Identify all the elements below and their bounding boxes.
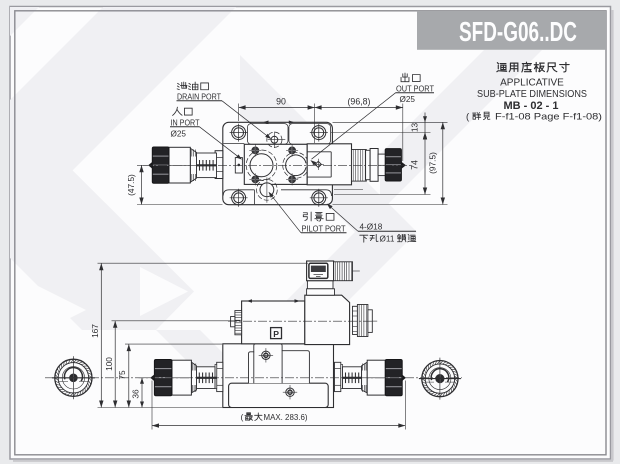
svg-text:(97.5): (97.5)	[427, 152, 437, 174]
svg-text:OUT PORT: OUT PORT	[396, 84, 434, 93]
svg-text:SUB-PLATE DIMENSIONS: SUB-PLATE DIMENSIONS	[477, 89, 587, 100]
svg-text:36: 36	[130, 389, 140, 399]
svg-text:MB - 02 - 1: MB - 02 - 1	[503, 100, 558, 112]
svg-text:DRAIN PORT: DRAIN PORT	[177, 92, 221, 101]
svg-text:Ø25: Ø25	[171, 130, 187, 139]
svg-text:Ø25: Ø25	[400, 95, 416, 104]
svg-text:PILOT PORT: PILOT PORT	[302, 224, 346, 233]
svg-text:APPLICATIVE: APPLICATIVE	[500, 78, 564, 89]
svg-text:F-f1-08 Page F-f1-08): F-f1-08 Page F-f1-08)	[495, 112, 602, 123]
svg-text:167: 167	[90, 324, 100, 338]
svg-text:SFD-G06..DC: SFD-G06..DC	[459, 16, 577, 47]
svg-text:13: 13	[410, 123, 420, 133]
svg-text:4-Ø18: 4-Ø18	[360, 222, 383, 231]
svg-text:90: 90	[276, 96, 286, 106]
svg-text:75: 75	[117, 370, 127, 380]
svg-text:P: P	[273, 329, 279, 339]
svg-text:MAX. 283.6): MAX. 283.6)	[264, 412, 308, 422]
svg-text:(: (	[241, 412, 244, 422]
svg-text:(96,8): (96,8)	[348, 96, 371, 106]
svg-text:(47.5): (47.5)	[126, 174, 136, 196]
svg-text:IN PORT: IN PORT	[171, 118, 200, 127]
svg-text:Ø11: Ø11	[380, 235, 395, 244]
svg-text:100: 100	[104, 357, 114, 371]
